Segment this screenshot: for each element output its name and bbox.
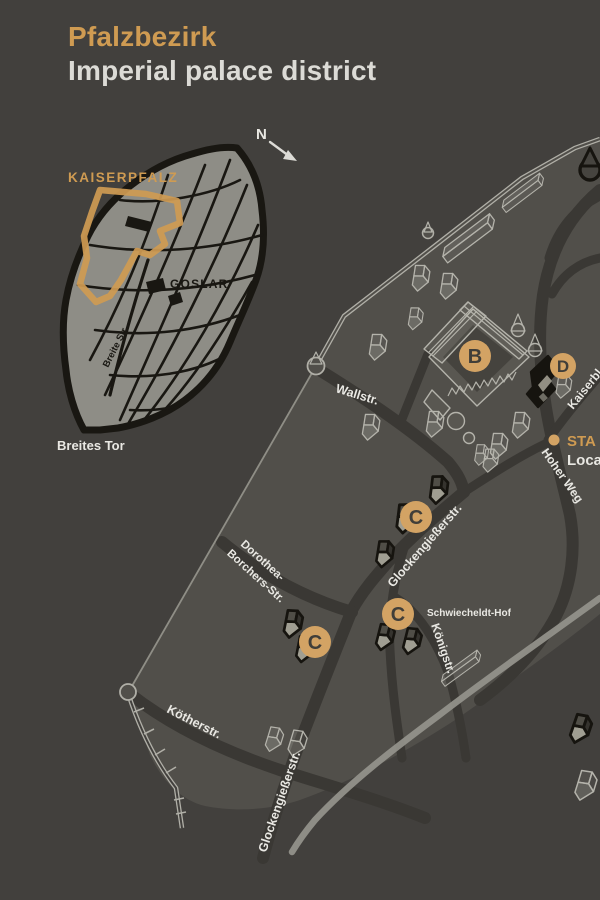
legend-location-dot bbox=[549, 435, 560, 446]
svg-text:C: C bbox=[308, 632, 322, 654]
marker-c3: C bbox=[382, 598, 414, 630]
inset-label-breites-tor: Breites Tor bbox=[57, 438, 125, 453]
svg-text:B: B bbox=[468, 346, 482, 368]
label-schwiecheldt-hof: Schwiecheldt-Hof bbox=[427, 608, 512, 619]
compass-n-label: N bbox=[256, 126, 267, 143]
palace-apse bbox=[464, 433, 475, 444]
map-page: Pfalzbezirk Imperial palace district bbox=[0, 0, 600, 900]
inset-label-goslar: GOSLAR bbox=[170, 277, 229, 291]
svg-text:C: C bbox=[391, 604, 405, 626]
marker-b: B bbox=[459, 340, 491, 372]
palace-south-tower bbox=[448, 413, 465, 430]
compass: N bbox=[256, 126, 297, 161]
marker-d: D bbox=[550, 353, 576, 379]
svg-text:D: D bbox=[557, 357, 569, 376]
inset-map: KAISERPFALZ GOSLAR Breite Str. Breites T… bbox=[57, 147, 264, 453]
legend-line1: STA bbox=[567, 433, 596, 450]
legend-line2: Loca bbox=[567, 452, 600, 469]
marker-c2: C bbox=[299, 626, 331, 658]
svg-text:C: C bbox=[409, 507, 423, 529]
wall-tower-small bbox=[423, 228, 434, 239]
district-map-canvas: Wallstr. Glockengießerstr. Glockengießer… bbox=[0, 0, 600, 900]
wall-tower-koetherstr bbox=[120, 684, 136, 700]
inset-label-kaiserpfalz: KAISERPFALZ bbox=[68, 170, 178, 185]
wall-tower-wallstr bbox=[308, 358, 325, 375]
marker-c1: C bbox=[400, 501, 432, 533]
